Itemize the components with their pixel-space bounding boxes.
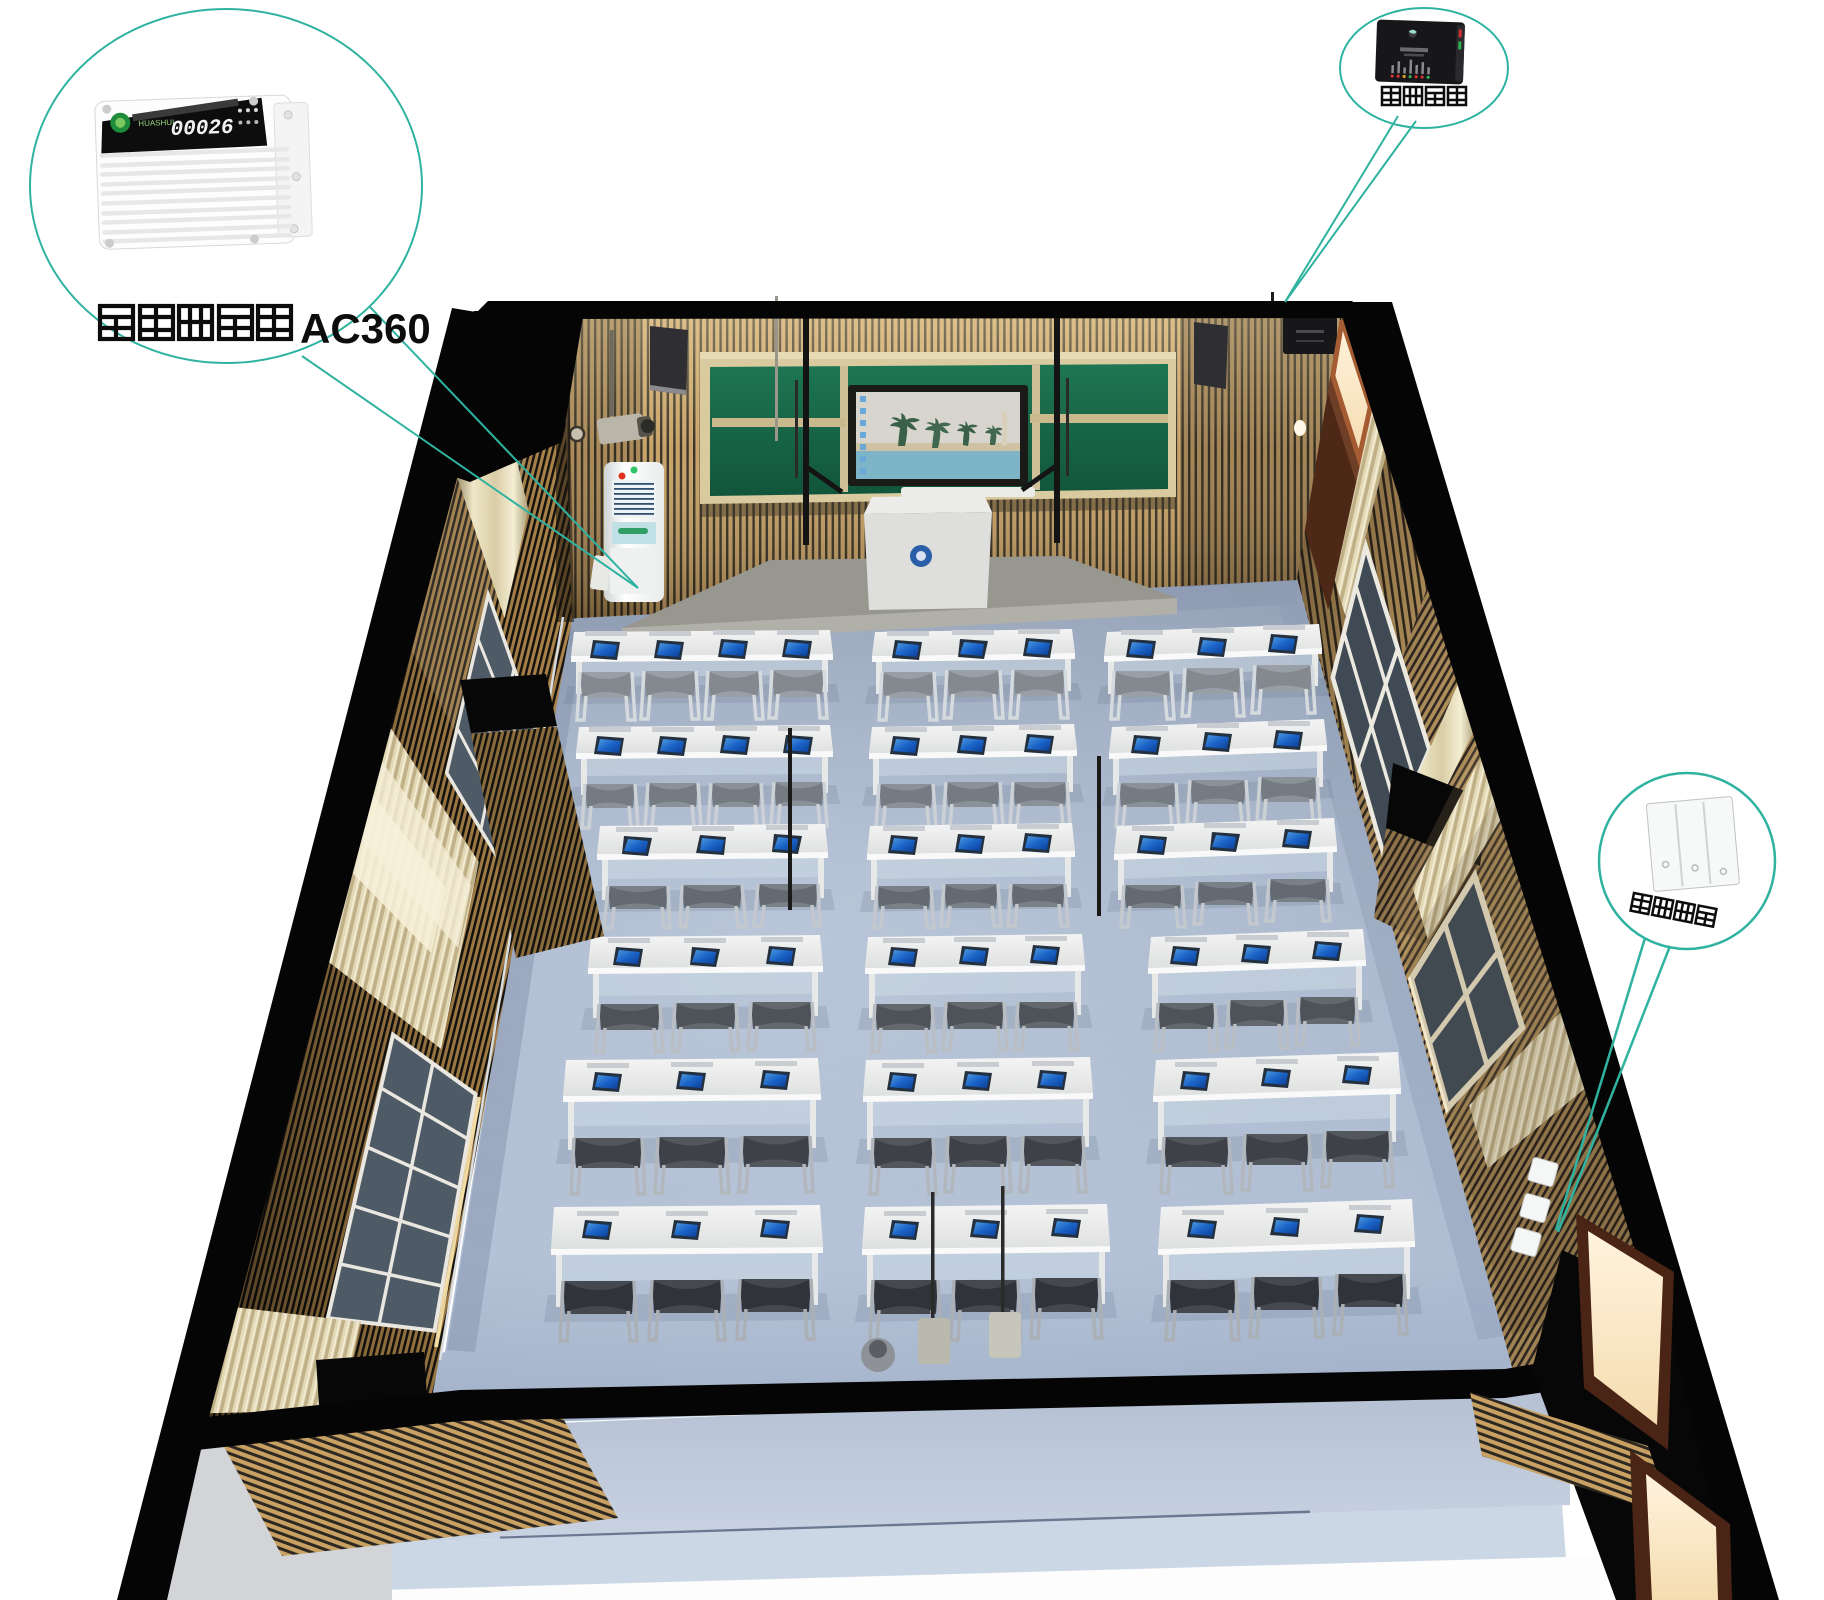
svg-text:00026: 00026: [170, 117, 234, 142]
svg-text:HUASHUI: HUASHUI: [138, 118, 174, 128]
svg-text:AC360: AC360: [300, 305, 431, 352]
